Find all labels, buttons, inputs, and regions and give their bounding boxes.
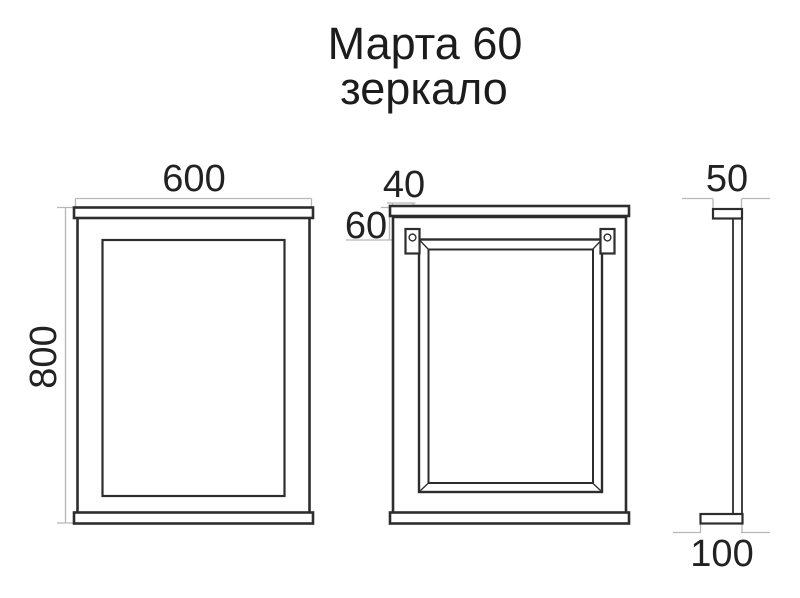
side-bottom-shelf-profile [701, 514, 743, 524]
front-bottom-cap [74, 513, 313, 524]
hanger-hole-right [604, 234, 611, 241]
back-top-cap [390, 206, 629, 216]
dim-label-top-depth: 50 [706, 158, 748, 200]
technical-drawing: Марта 60 зеркало 600 800 [0, 0, 800, 598]
drawing-canvas: Марта 60 зеркало 600 800 [0, 0, 800, 598]
product-type: зеркало [340, 63, 508, 114]
front-body [78, 212, 310, 517]
dim-label-hanger-y: 60 [345, 205, 387, 247]
front-top-cap [74, 208, 313, 219]
side-view: 50 100 [673, 158, 770, 575]
back-frame-inner [429, 250, 594, 484]
side-top-cap-profile [713, 209, 742, 219]
dim-label-hanger-x: 40 [383, 164, 425, 206]
hanger-hole-left [409, 234, 416, 241]
back-view: 40 60 [345, 164, 629, 524]
front-view: 600 800 [23, 158, 313, 524]
dim-label-front-width: 600 [162, 158, 225, 200]
dim-label-front-height: 800 [23, 325, 65, 388]
dim-label-bottom-depth: 100 [690, 533, 753, 575]
drawing-title: Марта 60 зеркало [328, 18, 523, 114]
product-name: Марта 60 [328, 18, 523, 69]
side-body-profile [733, 219, 742, 515]
back-bottom-cap [390, 513, 629, 524]
